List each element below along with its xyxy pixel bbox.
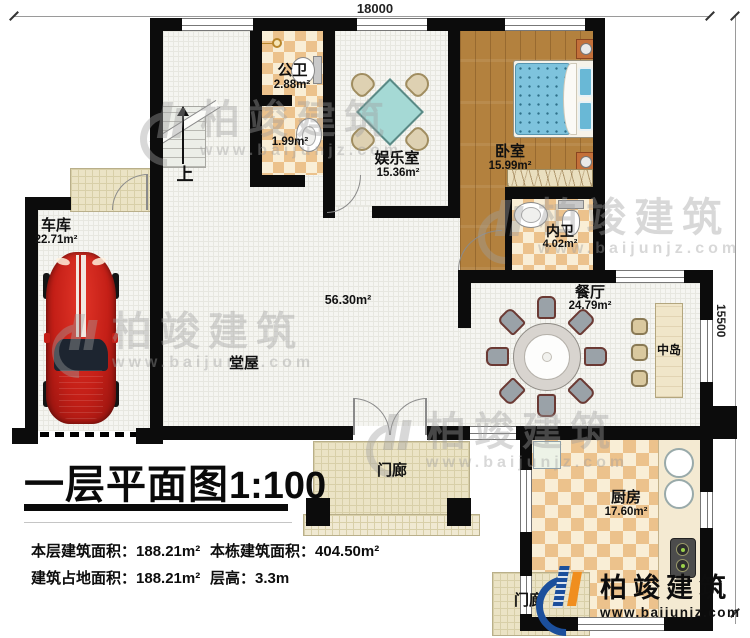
toilet-icon xyxy=(558,200,584,209)
entry-door-left-leaf xyxy=(353,398,355,435)
window xyxy=(520,470,532,532)
nightstand-lamp xyxy=(580,43,592,55)
company-logo-icon xyxy=(536,566,594,628)
bed-sheet-fold xyxy=(563,63,577,135)
dimension-line-right xyxy=(735,16,736,624)
room-area-public-bath: 2.88m² xyxy=(257,79,327,91)
stool-icon xyxy=(631,370,648,387)
window xyxy=(700,492,713,528)
wall-bedroom-bottom xyxy=(505,187,605,199)
room-label-garage: 车库 xyxy=(26,218,86,234)
chair-icon xyxy=(537,394,556,417)
entry-door-right-leaf xyxy=(425,398,427,435)
room-area-garage: 22.71m² xyxy=(21,234,91,246)
wall-hall-bottom-left xyxy=(150,426,353,440)
stairs-up-label: 上 xyxy=(171,166,199,184)
company-url: www.baijunjz.com xyxy=(600,605,741,620)
window xyxy=(470,426,516,440)
room-label-entertainment: 娱乐室 xyxy=(352,151,442,167)
kitchen-sink-icon xyxy=(664,448,694,478)
window xyxy=(505,18,585,31)
room-area-entertainment: 15.36m² xyxy=(356,167,440,179)
kitchen-sink-icon xyxy=(664,479,694,509)
chair-icon xyxy=(537,296,556,319)
stat-floor-area: 本层建筑面积：188.21m² xyxy=(31,540,200,561)
pillow-icon xyxy=(578,67,593,97)
wall-garage-pier xyxy=(136,428,163,444)
title-underline xyxy=(24,504,288,511)
staircase-arrow-head xyxy=(177,106,189,116)
staircase-arrow xyxy=(182,114,184,164)
plan-scale: 1:100 xyxy=(229,465,326,508)
chair-icon xyxy=(584,347,607,366)
room-area-wash: 1.99m² xyxy=(258,136,322,148)
garage-door-leaf xyxy=(146,174,148,210)
garage-door-dashed-line xyxy=(40,432,136,437)
car-mirror xyxy=(44,333,50,343)
room-area-bedroom: 15.99m² xyxy=(472,160,548,172)
room-area-dining: 24.79m² xyxy=(556,300,624,312)
washbasin-icon xyxy=(521,207,541,223)
window xyxy=(700,320,713,382)
car-stripe xyxy=(76,255,86,337)
window xyxy=(357,18,427,31)
car-windshield xyxy=(54,339,108,371)
room-label-island: 中岛 xyxy=(655,344,683,357)
wall-garage-top xyxy=(25,197,71,210)
room-area-hall: 56.30m² xyxy=(316,294,380,307)
wall-bath-mid xyxy=(262,95,292,106)
room-label-ensuite: 内卫 xyxy=(528,224,592,239)
wall-dining-left-stub xyxy=(458,270,471,328)
room-label-front-porch: 门廊 xyxy=(362,463,422,479)
stat-building-area: 本栋建筑面积：404.50m² xyxy=(210,540,379,561)
wall-entertainment-bottom xyxy=(372,206,460,218)
car-icon xyxy=(44,249,118,429)
window xyxy=(182,18,253,31)
nightstand-lamp xyxy=(580,156,592,168)
car-mirror xyxy=(112,333,118,343)
room-label-dining: 餐厅 xyxy=(560,285,620,301)
stool-icon xyxy=(631,318,648,335)
stool-icon xyxy=(631,344,648,361)
room-label-hall: 堂屋 xyxy=(221,356,267,372)
car-engine-cover xyxy=(59,369,103,419)
fridge-icon xyxy=(533,441,561,469)
stat-footprint-area: 建筑占地面积：188.21m² xyxy=(31,567,200,588)
plan-title: 一层平面图1:100 xyxy=(24,452,326,510)
wall-entertainment-bedroom xyxy=(448,18,460,218)
room-label-bedroom: 卧室 xyxy=(479,144,541,160)
room-label-public-bath: 公卫 xyxy=(262,63,323,79)
chair-icon xyxy=(486,347,509,366)
wall-bath-bottom xyxy=(250,175,305,187)
dimension-top-label: 18000 xyxy=(340,1,410,16)
wall-left xyxy=(150,18,163,440)
wall-bedroom-right xyxy=(593,18,605,283)
ceiling-light-icon xyxy=(272,38,282,48)
dimension-line-top xyxy=(14,16,710,17)
wall-bath-left xyxy=(250,18,262,187)
pillow-icon xyxy=(578,101,593,131)
stove-burner-dot xyxy=(681,548,685,552)
dining-table-center xyxy=(542,352,552,362)
stat-floor-height: 层高：3.3m xyxy=(210,567,289,588)
room-area-kitchen: 17.60m² xyxy=(591,506,661,518)
company-name: 柏竣建筑 xyxy=(600,575,741,602)
floor-plan-canvas: 18000 15500 xyxy=(0,0,750,638)
room-area-ensuite: 4.02m² xyxy=(527,239,593,251)
front-porch-pillar xyxy=(447,498,471,526)
plan-title-text: 一层平面图 xyxy=(24,452,229,510)
room-label-kitchen: 厨房 xyxy=(597,490,655,506)
window xyxy=(616,270,684,283)
wall-corridor-ensuite xyxy=(505,199,512,270)
wall-garage-pier xyxy=(12,428,38,444)
dimension-right-label: 15500 xyxy=(714,304,728,337)
title-underline-thin xyxy=(24,522,292,523)
company-logo: 柏竣建筑 www.baijunjz.com xyxy=(536,566,741,628)
